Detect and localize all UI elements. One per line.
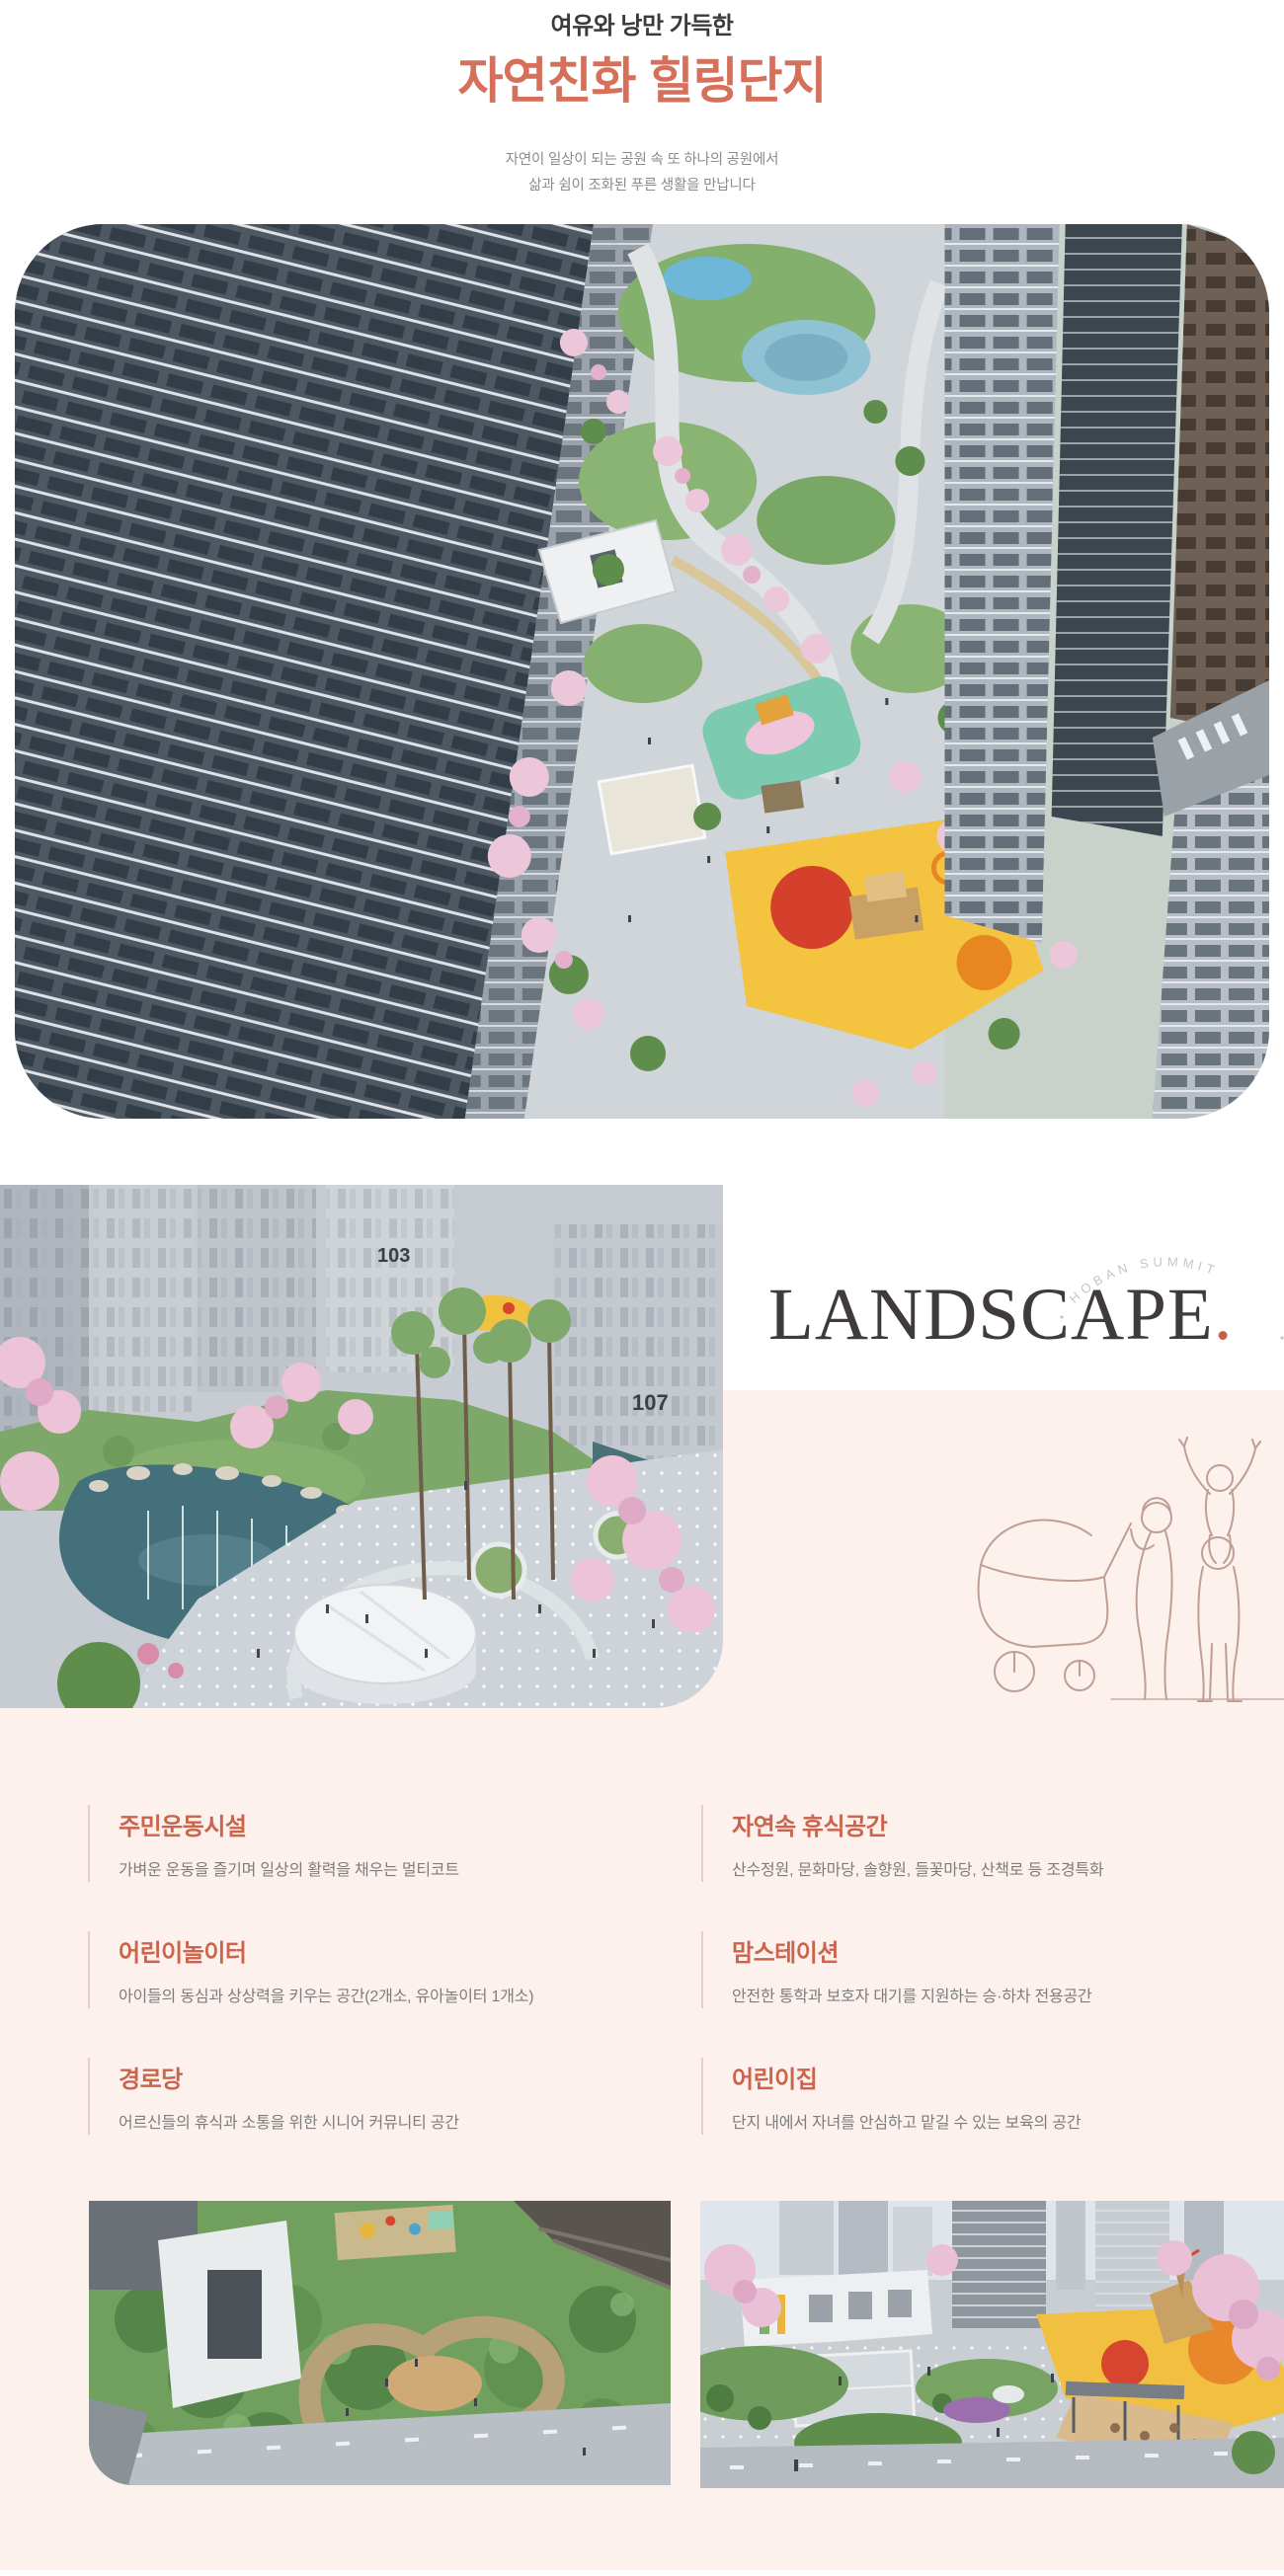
feature-children-playground: 어린이놀이터 아이들의 동심과 상상력을 키우는 공간(2개소, 유아놀이터 1…	[88, 1931, 641, 2008]
landscape-promo-page: 여유와 낭만 가득한 자연친화 힐링단지 자연이 일상이 되는 공원 속 또 하…	[0, 0, 1284, 2576]
feature-title: 어린이놀이터	[119, 1933, 641, 1968]
feature-title: 맘스테이션	[732, 1933, 1254, 1968]
feature-senior-center: 경로당 어르신들의 휴식과 소통을 위한 시니어 커뮤니티 공간	[88, 2058, 641, 2135]
hoban-summit-arc-text: HOBAN SUMMIT	[1067, 1254, 1221, 1306]
feature-title: 어린이집	[732, 2060, 1254, 2094]
svg-text:HOBAN SUMMIT: HOBAN SUMMIT	[1067, 1254, 1221, 1306]
pond-plaza-illustration: 103 107	[0, 1185, 723, 1708]
building-label-107: 107	[632, 1390, 669, 1415]
pond-plaza-photo: 103 107	[0, 1185, 723, 1708]
feature-community-sports: 주민운동시설 가벼운 운동을 즐기며 일상의 활력을 채우는 멀티코트	[88, 1805, 641, 1882]
building-label-103: 103	[377, 1245, 410, 1267]
playground-illustration	[700, 2201, 1284, 2488]
family-line-art	[963, 1407, 1284, 1723]
section-eyebrow: 여유와 낭만 가득한	[0, 6, 1284, 40]
green-park-illustration	[89, 2201, 671, 2485]
feature-mom-station: 맘스테이션 안전한 통학과 보호자 대기를 지원하는 승·하차 전용공간	[701, 1931, 1254, 2008]
feature-title: 주민운동시설	[119, 1807, 641, 1841]
green-park-photo	[89, 2201, 671, 2485]
playground-photo	[700, 2201, 1284, 2488]
feature-nature-rest-space: 자연속 휴식공간 산수정원, 문화마당, 솔향원, 들꽃마당, 산책로 등 조경…	[701, 1805, 1254, 1882]
page-title: 자연친화 힐링단지	[0, 41, 1284, 113]
feature-desc: 아이들의 동심과 상상력을 키우는 공간(2개소, 유아놀이터 1개소)	[119, 1983, 641, 2006]
feature-desc: 안전한 통학과 보호자 대기를 지원하는 승·하차 전용공간	[732, 1983, 1254, 2006]
subtitle-line-1: 자연이 일상이 되는 공원 속 또 하나의 공원에서	[0, 148, 1284, 169]
feature-desc: 어르신들의 휴식과 소통을 위한 시니어 커뮤니티 공간	[119, 2109, 641, 2133]
feature-desc: 산수정원, 문화마당, 솔향원, 들꽃마당, 산책로 등 조경특화	[732, 1856, 1254, 1880]
feature-desc: 단지 내에서 자녀를 안심하고 맡길 수 있는 보육의 공간	[732, 2109, 1254, 2133]
feature-daycare-center: 어린이집 단지 내에서 자녀를 안심하고 맡길 수 있는 보육의 공간	[701, 2058, 1254, 2135]
feature-desc: 가벼운 운동을 즐기며 일상의 활력을 채우는 멀티코트	[119, 1856, 641, 1880]
subtitle-line-2: 삶과 쉼이 조화된 푸른 생활을 만납니다	[0, 174, 1284, 195]
hoban-summit-arc-emblem: HOBAN SUMMIT	[1042, 1203, 1284, 1351]
hero-aerial-photo	[15, 224, 1269, 1119]
feature-title: 자연속 휴식공간	[732, 1807, 1254, 1841]
feature-title: 경로당	[119, 2060, 641, 2094]
hero-aerial-illustration	[15, 224, 1269, 1119]
